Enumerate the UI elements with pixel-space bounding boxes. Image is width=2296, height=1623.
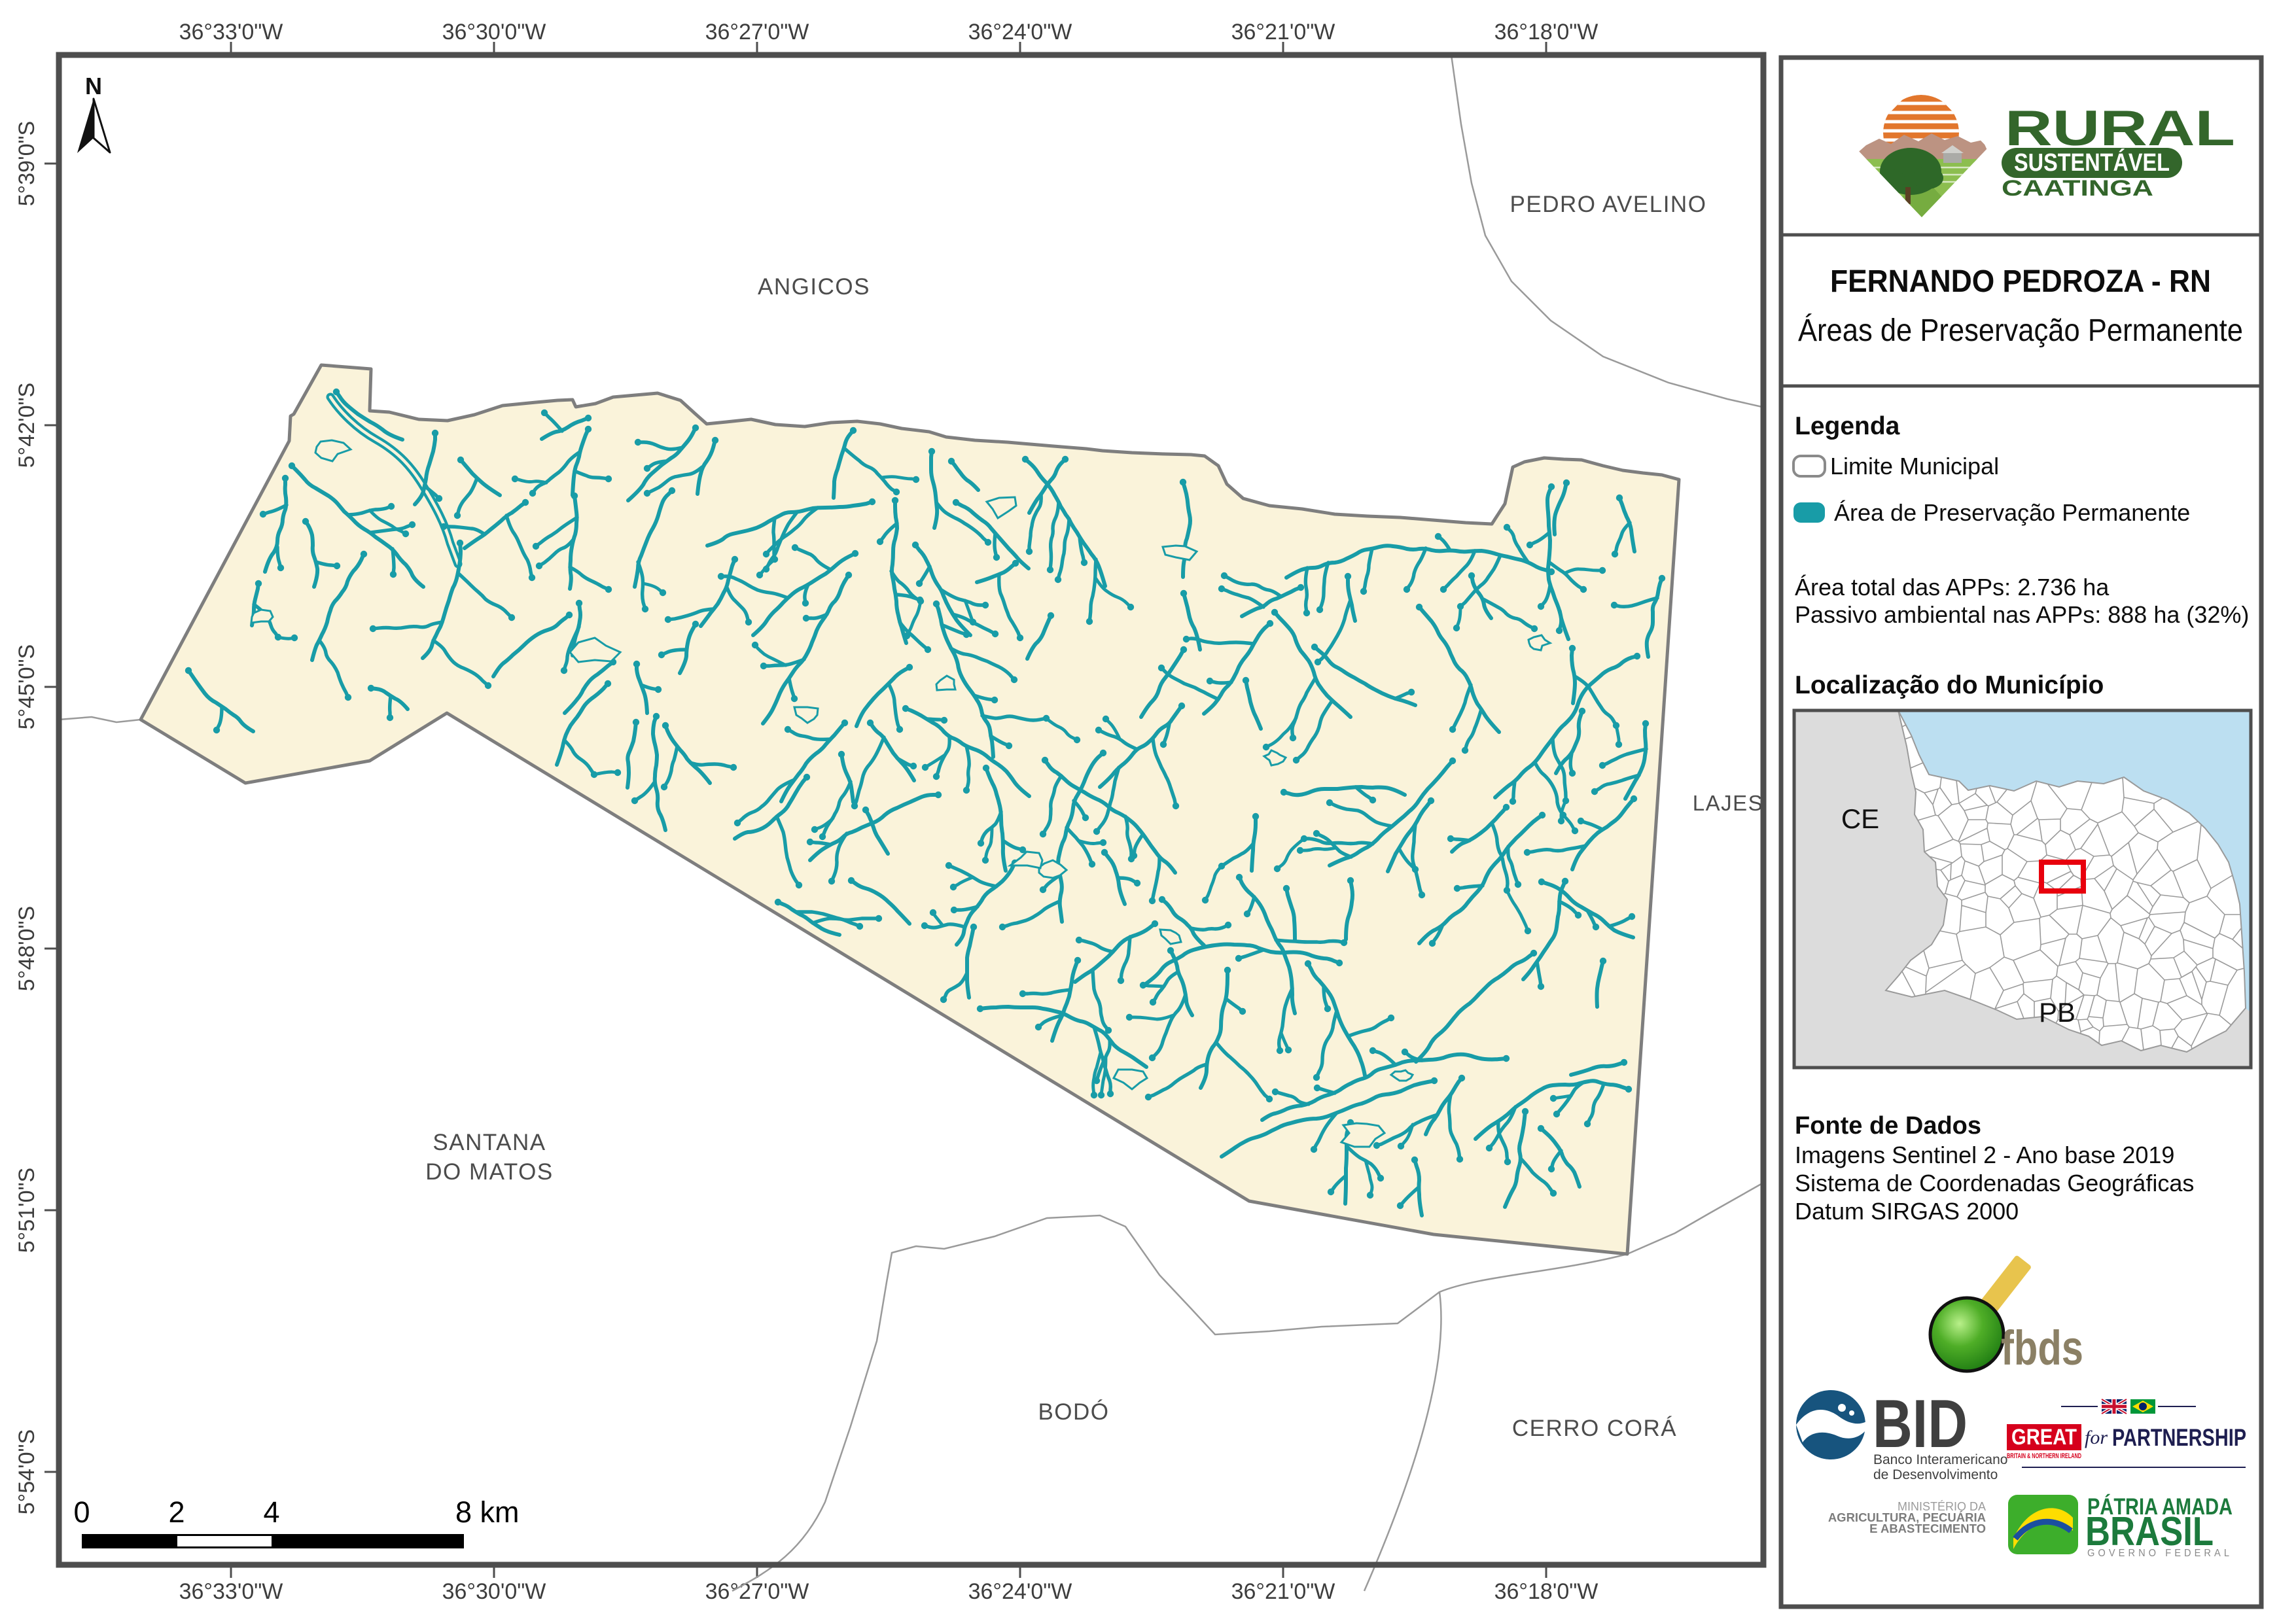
svg-text:36°27'0"W: 36°27'0"W	[705, 20, 809, 44]
svg-text:GREAT: GREAT	[2011, 1425, 2077, 1450]
svg-text:8 km: 8 km	[455, 1495, 520, 1529]
svg-text:36°21'0"W: 36°21'0"W	[1231, 20, 1335, 44]
svg-text:5°54'0"S: 5°54'0"S	[14, 1429, 39, 1514]
svg-text:GOVERNO FEDERAL: GOVERNO FEDERAL	[2087, 1548, 2233, 1559]
svg-text:for: for	[2085, 1427, 2108, 1448]
svg-text:36°30'0"W: 36°30'0"W	[442, 20, 546, 44]
svg-text:SUSTENTÁVEL: SUSTENTÁVEL	[2014, 148, 2170, 177]
svg-text:0: 0	[73, 1495, 90, 1529]
svg-text:BRITAIN & NORTHERN IRELAND: BRITAIN & NORTHERN IRELAND	[2007, 1452, 2081, 1460]
svg-text:36°18'0"W: 36°18'0"W	[1494, 20, 1598, 44]
svg-text:E ABASTECIMENTO: E ABASTECIMENTO	[1869, 1522, 1986, 1535]
svg-text:PARTNERSHIP: PARTNERSHIP	[2112, 1424, 2246, 1451]
svg-text:36°18'0"W: 36°18'0"W	[1494, 1579, 1598, 1604]
svg-text:5°48'0"S: 5°48'0"S	[14, 906, 39, 991]
svg-text:2: 2	[168, 1495, 185, 1529]
svg-text:36°21'0"W: 36°21'0"W	[1231, 1579, 1335, 1604]
svg-text:N: N	[85, 73, 102, 99]
svg-text:4: 4	[263, 1495, 279, 1529]
svg-text:BODÓ: BODÓ	[1038, 1399, 1109, 1425]
svg-text:5°45'0"S: 5°45'0"S	[14, 644, 39, 729]
svg-text:36°24'0"W: 36°24'0"W	[968, 20, 1072, 44]
svg-text:PEDRO AVELINO: PEDRO AVELINO	[1510, 192, 1707, 217]
svg-text:Sistema de Coordenadas Geográf: Sistema de Coordenadas Geográficas	[1795, 1170, 2194, 1196]
svg-text:CAATINGA: CAATINGA	[2002, 176, 2153, 201]
svg-text:5°42'0"S: 5°42'0"S	[14, 383, 39, 468]
svg-text:36°24'0"W: 36°24'0"W	[968, 1579, 1072, 1604]
svg-text:de Desenvolvimento: de Desenvolvimento	[1873, 1467, 1998, 1482]
svg-text:BID: BID	[1873, 1386, 1968, 1462]
svg-text:Área total das APPs: 2.736 ha: Área total das APPs: 2.736 ha	[1795, 574, 2110, 601]
svg-text:36°33'0"W: 36°33'0"W	[179, 20, 283, 44]
svg-text:Imagens Sentinel 2 - Ano base: Imagens Sentinel 2 - Ano base 2019	[1795, 1142, 2174, 1168]
svg-text:fbds: fbds	[2001, 1321, 2083, 1375]
svg-text:36°33'0"W: 36°33'0"W	[179, 1579, 283, 1604]
svg-text:Localização do Município: Localização do Município	[1795, 671, 2104, 699]
svg-text:CE: CE	[1841, 803, 1879, 834]
svg-text:36°27'0"W: 36°27'0"W	[705, 1579, 809, 1604]
svg-text:Limite Municipal: Limite Municipal	[1830, 453, 1999, 480]
svg-text:Fonte de Dados: Fonte de Dados	[1795, 1112, 1981, 1140]
svg-text:LAJES: LAJES	[1693, 791, 1763, 815]
svg-text:Área de Preservação Permanente: Área de Preservação Permanente	[1834, 499, 2190, 526]
svg-text:5°51'0"S: 5°51'0"S	[14, 1168, 39, 1253]
svg-text:DO MATOS: DO MATOS	[425, 1159, 553, 1185]
svg-text:Passivo ambiental nas APPs: 88: Passivo ambiental nas APPs: 888 ha (32%)	[1795, 601, 2249, 628]
svg-text:FERNANDO PEDROZA - RN: FERNANDO PEDROZA - RN	[1830, 264, 2211, 299]
svg-text:Legenda: Legenda	[1795, 412, 1900, 440]
svg-text:Datum SIRGAS 2000: Datum SIRGAS 2000	[1795, 1198, 2019, 1225]
svg-text:Banco Interamericano: Banco Interamericano	[1873, 1452, 2007, 1467]
svg-text:SANTANA: SANTANA	[433, 1130, 546, 1155]
svg-text:5°39'0"S: 5°39'0"S	[14, 121, 39, 206]
svg-text:ANGICOS: ANGICOS	[758, 274, 870, 300]
svg-text:CERRO CORÁ: CERRO CORÁ	[1512, 1416, 1677, 1441]
svg-text:Áreas de Preservação Permanent: Áreas de Preservação Permanente	[1798, 313, 2243, 348]
svg-text:PB: PB	[2039, 997, 2075, 1028]
svg-text:36°30'0"W: 36°30'0"W	[442, 1579, 546, 1604]
